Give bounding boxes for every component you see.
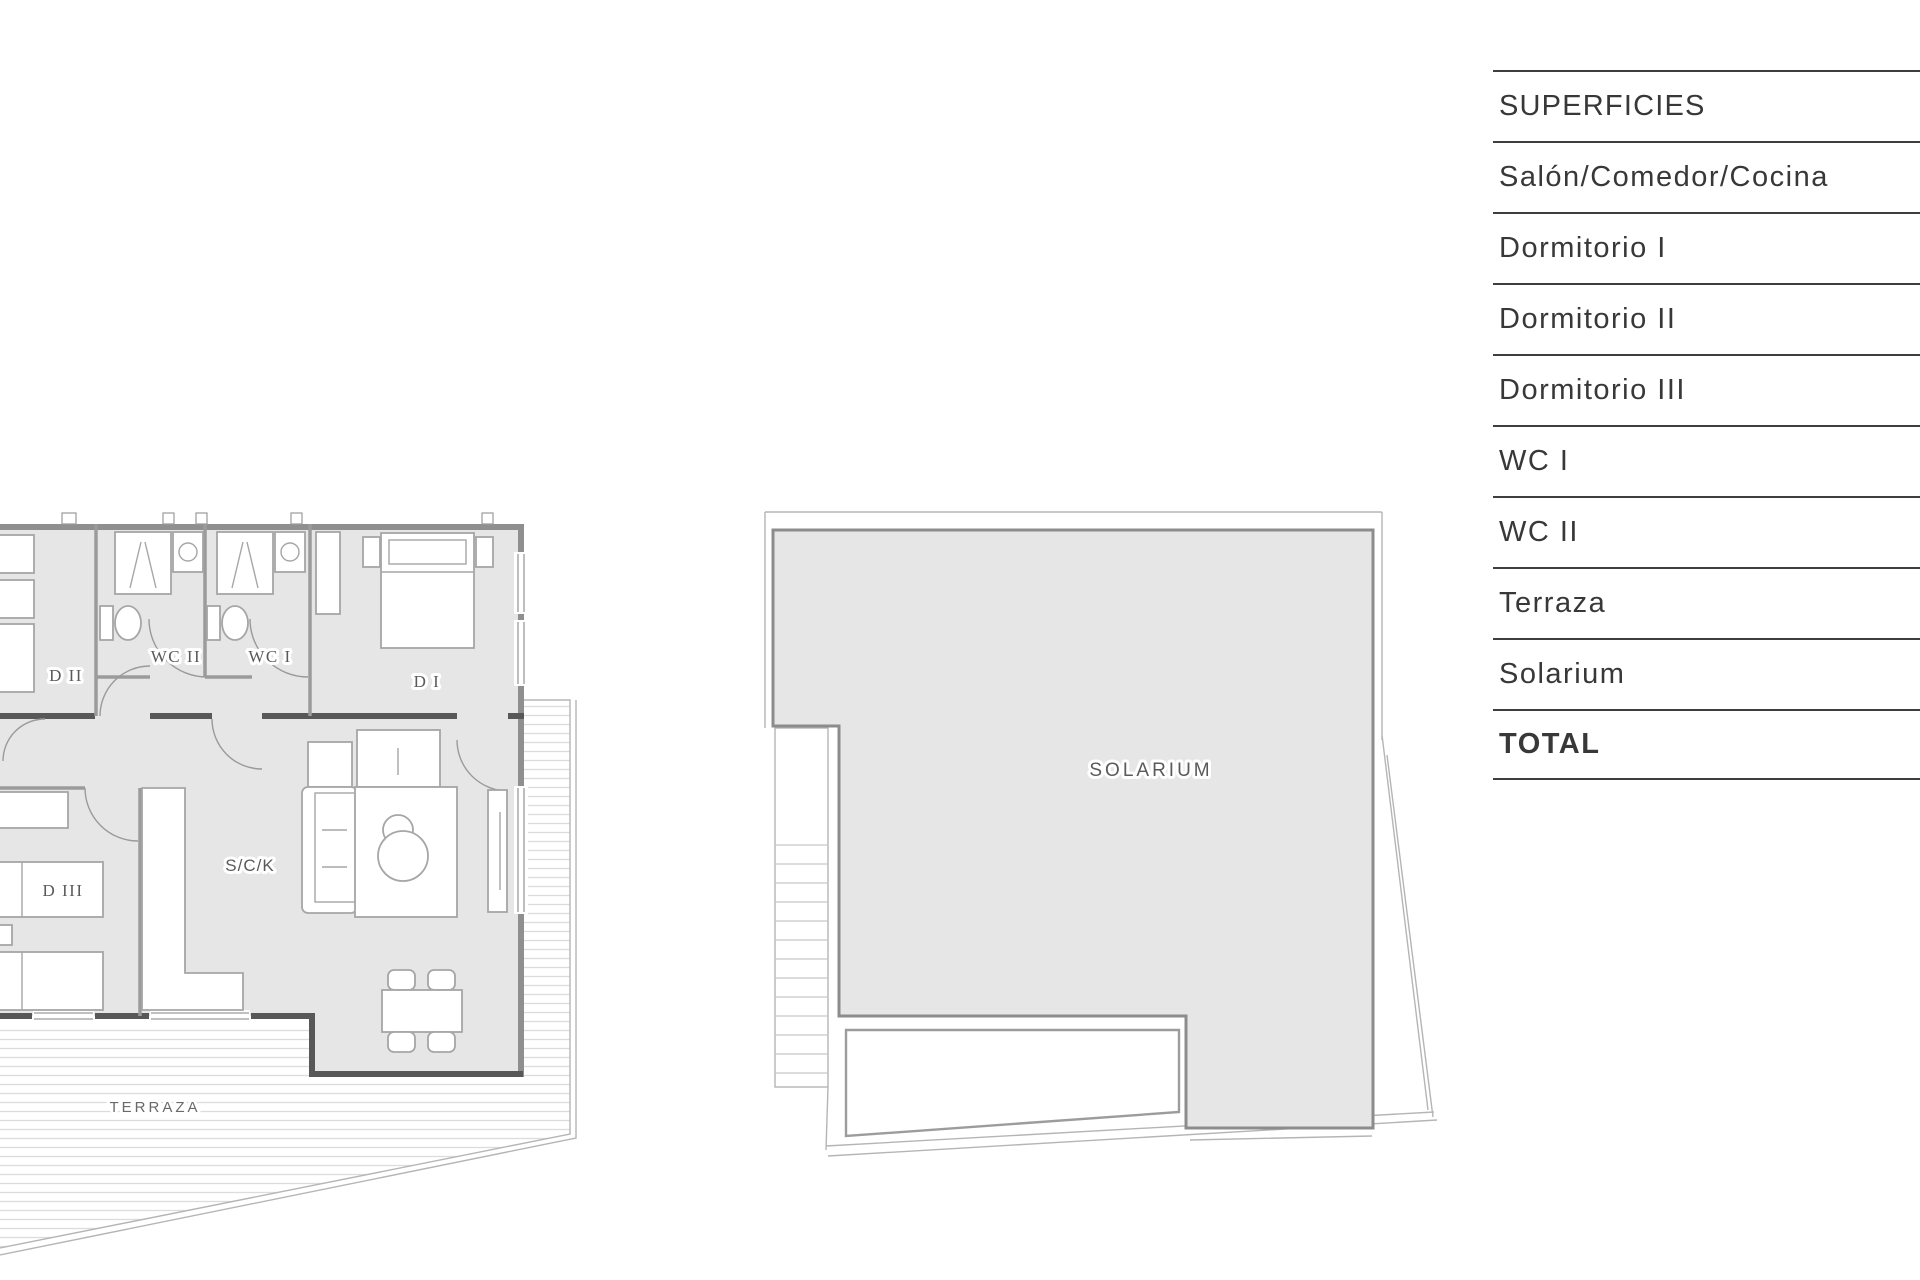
shower-glyph	[217, 532, 273, 594]
table-total-row: TOTAL	[1493, 709, 1920, 780]
table-header-row: SUPERFICIES	[1493, 70, 1920, 141]
nightstand-glyph	[363, 537, 380, 567]
table-row: Dormitorio I	[1493, 212, 1920, 283]
row-label: Solarium	[1499, 658, 1625, 691]
bed-glyph	[0, 952, 103, 1010]
bedroom2-furniture	[0, 535, 34, 692]
table-row: Dormitorio II	[1493, 283, 1920, 354]
label-dormitorio-3: D III	[42, 881, 83, 900]
desk-glyph	[0, 792, 68, 828]
label-wc-1: WC I	[248, 647, 291, 666]
label-salon-comedor-cocina: S/C/K	[225, 856, 274, 875]
nightstand-glyph	[0, 925, 12, 945]
chair-glyph	[388, 1032, 415, 1052]
sink-glyph	[173, 532, 203, 572]
chair-glyph	[428, 970, 455, 990]
table-header-label: SUPERFICIES	[1499, 90, 1706, 123]
row-label: WC II	[1499, 516, 1579, 549]
wall-ticks	[62, 513, 493, 524]
bed-glyph	[381, 533, 474, 648]
sofa-glyph	[302, 787, 357, 913]
table-row: WC II	[1493, 496, 1920, 567]
roof-void-glyph	[846, 1030, 1179, 1136]
label-dormitorio-2: D II	[49, 666, 83, 685]
armchair-glyph	[308, 742, 352, 787]
floorplan-page: D II WC II WC I D I D III S/C/K TERRAZA …	[0, 0, 1920, 1280]
shower-glyph	[115, 532, 171, 594]
apartment-plan: D II WC II WC I D I D III S/C/K TERRAZA	[0, 513, 576, 1255]
row-label: Salón/Comedor/Cocina	[1499, 161, 1829, 194]
table-row: Solarium	[1493, 638, 1920, 709]
label-wc-2: WC II	[151, 647, 201, 666]
stairs-glyph	[775, 728, 828, 1087]
table-row: Salón/Comedor/Cocina	[1493, 141, 1920, 212]
chair-glyph	[428, 1032, 455, 1052]
toilet-glyph	[207, 606, 220, 640]
tv-unit-glyph	[488, 790, 507, 912]
staircase	[775, 728, 828, 1087]
row-label: Dormitorio III	[1499, 374, 1686, 407]
row-label: Dormitorio II	[1499, 303, 1676, 336]
wardrobe-glyph	[316, 532, 340, 614]
label-dormitorio-1: D I	[414, 672, 441, 691]
table-row: Dormitorio III	[1493, 354, 1920, 425]
nightstand-glyph	[476, 537, 493, 567]
toilet-glyph	[100, 606, 113, 640]
superficies-table: SUPERFICIES Salón/Comedor/Cocina Dormito…	[1493, 70, 1920, 780]
row-label: Dormitorio I	[1499, 232, 1667, 265]
row-label: Terraza	[1499, 587, 1606, 620]
label-solarium: SOLARIUM	[1089, 760, 1212, 781]
chair-glyph	[388, 970, 415, 990]
table-row: Terraza	[1493, 567, 1920, 638]
total-label: TOTAL	[1499, 728, 1600, 761]
coffee-table-glyph	[378, 831, 428, 881]
table-row: WC I	[1493, 425, 1920, 496]
label-terraza: TERRAZA	[109, 1099, 200, 1116]
solarium-plan: SOLARIUM	[765, 512, 1437, 1156]
dining-table-glyph	[382, 990, 462, 1032]
sink-glyph	[275, 532, 305, 572]
row-label: WC I	[1499, 445, 1569, 478]
